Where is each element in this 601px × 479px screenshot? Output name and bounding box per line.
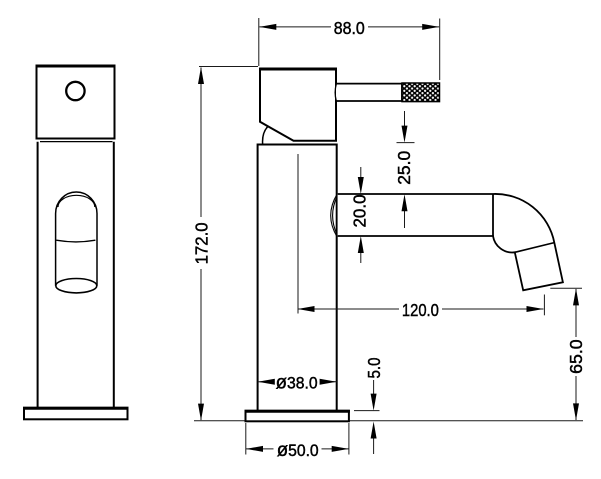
- svg-text:ø50.0: ø50.0: [277, 439, 319, 461]
- svg-text:25.0: 25.0: [394, 151, 414, 185]
- svg-text:172.0: 172.0: [192, 222, 212, 264]
- svg-text:65.0: 65.0: [566, 339, 586, 374]
- svg-text:ø38.0: ø38.0: [276, 372, 318, 394]
- svg-text:20.0: 20.0: [350, 194, 370, 227]
- svg-text:120.0: 120.0: [402, 300, 439, 320]
- svg-text:88.0: 88.0: [334, 18, 365, 38]
- svg-text:5.0: 5.0: [364, 357, 384, 378]
